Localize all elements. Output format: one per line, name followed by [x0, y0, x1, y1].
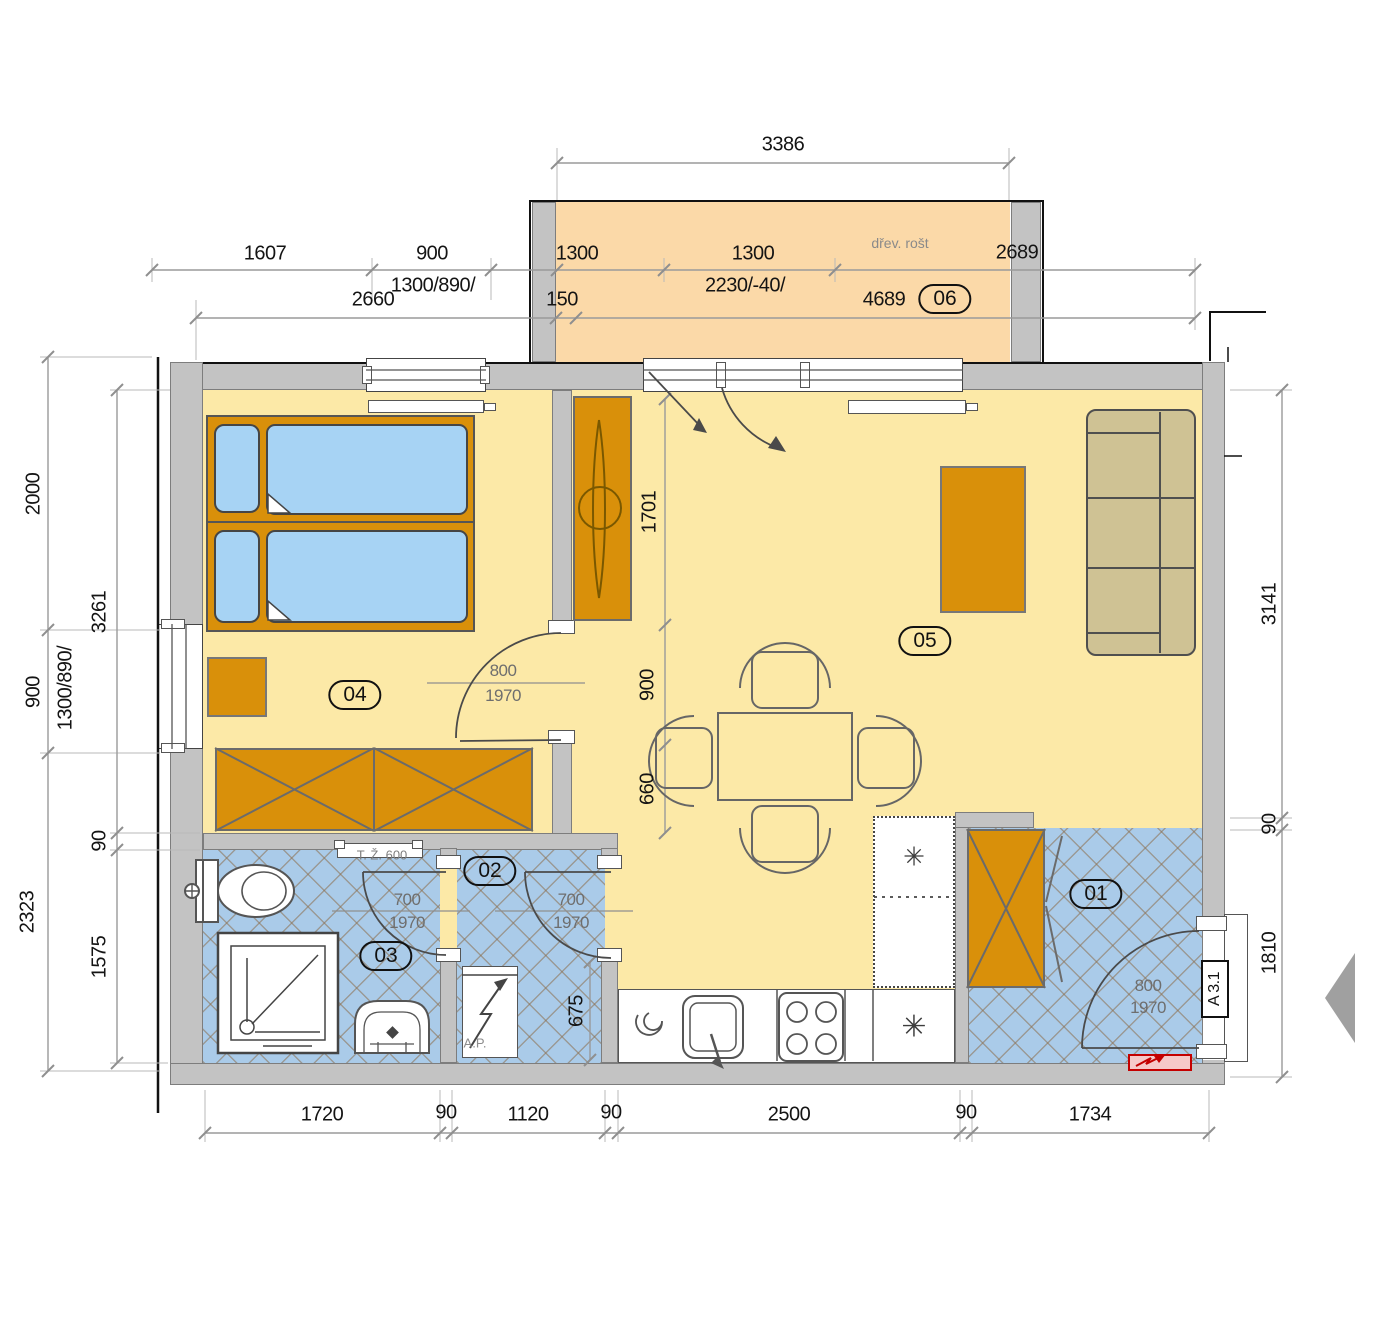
nightstand: [207, 657, 267, 717]
room-badge-01: 01: [1069, 879, 1122, 909]
dim-top-seg5: 4689: [863, 289, 906, 312]
dim-balcony-panel2: 1300: [732, 243, 775, 266]
spec-bath-door-h: 1970: [389, 913, 425, 933]
dim-interior-table-clear: 900: [637, 669, 660, 701]
bed1-pillow: [214, 424, 260, 513]
room-badge-04: 04: [328, 680, 381, 710]
note-washing-machine: A.P.: [464, 1036, 487, 1051]
spec-entrance-door-w: 800: [1135, 976, 1162, 996]
balcony-pillar-left: [532, 202, 556, 362]
electrical-box: [1128, 1054, 1192, 1071]
wall-hall-stub: [955, 812, 1034, 828]
note-towel-rail: T. Ž. 600: [357, 848, 408, 863]
bedroom-door-post-bottom: [548, 730, 575, 744]
dim-right-seg3: 1810: [1259, 932, 1282, 975]
wc-door-post-top: [597, 855, 622, 869]
spec-bedroom-door-w: 800: [490, 661, 517, 681]
dim-left-seg6: 1575: [89, 936, 112, 979]
balcony-window-mullion-1: [716, 362, 726, 388]
left-window-post-bottom: [161, 743, 185, 753]
bedroom-window: [366, 358, 486, 392]
spec-balcony-door: 2230/-40/: [705, 275, 785, 298]
dim-interior-wardrobe-wall: 1701: [639, 491, 662, 534]
wall-bath-wc-lower: [440, 958, 457, 1063]
spec-left-window: 1300/890/: [55, 646, 78, 730]
balcony-window-mullion-2: [800, 362, 810, 388]
fridge-snowflake-icon: ✳: [903, 842, 925, 873]
bed2-pillow: [214, 530, 260, 623]
wall-bottom: [170, 1063, 1225, 1085]
bedroom-door-post-top: [548, 620, 575, 634]
spec-bedroom-window: 1300/890/: [391, 275, 475, 298]
bed2-duvet: [266, 530, 468, 623]
dim-bottom-seg7: 1734: [1069, 1104, 1112, 1127]
spec-bath-door-w: 700: [394, 890, 421, 910]
dim-left-seg3: 2323: [17, 891, 40, 934]
dim-top-seg2: 900: [416, 243, 448, 266]
wall-wc-kitchen-lower: [601, 958, 618, 1063]
dim-interior-wc-depth: 675: [566, 995, 589, 1027]
towel-rail-cap-left: [334, 840, 345, 849]
spec-wc-door-h: 1970: [553, 913, 589, 933]
dim-bottom-seg4: 90: [600, 1102, 621, 1125]
radiator-bedroom: [368, 400, 484, 413]
room-badge-03: 03: [359, 941, 412, 971]
dim-balcony-pillar: 150: [546, 289, 578, 312]
dim-interior-table-width: 660: [637, 773, 660, 805]
room-badge-06: 06: [918, 284, 971, 314]
radiator-bedroom-cap: [484, 403, 496, 411]
bedroom-window-post-right: [480, 366, 490, 384]
entrance-post-bottom: [1196, 1044, 1227, 1059]
dim-left-seg5: 90: [89, 830, 112, 851]
dim-balcony-total: 3386: [762, 134, 805, 157]
floor-plan: 3386 1607 900 1300/890/ 2660 1300 1300 d…: [0, 0, 1380, 1320]
sofa: [1086, 409, 1196, 656]
dim-top-seg3: 2660: [352, 289, 395, 312]
section-mark-label: A 3.1: [1206, 972, 1224, 1006]
dim-bottom-seg6: 90: [955, 1102, 976, 1125]
radiator-living-cap: [966, 403, 978, 411]
dim-bottom-seg3: 1120: [507, 1104, 548, 1127]
dim-left-seg2: 900: [23, 676, 46, 708]
note-balcony-floor: dřev. rošt: [871, 235, 928, 251]
entrance-post-top: [1196, 916, 1227, 931]
hallway-cabinet: [573, 396, 632, 621]
wc-door-post-bottom: [597, 948, 622, 962]
dim-right-seg2: 90: [1259, 813, 1282, 834]
section-arrow: [1325, 953, 1355, 1043]
bedroom-window-post-left: [362, 366, 372, 384]
room-badge-02: 02: [463, 856, 516, 886]
radiator-living: [848, 400, 966, 414]
dim-left-seg4: 3261: [89, 591, 112, 634]
spec-wc-door-w: 700: [558, 890, 585, 910]
freezer-snowflake-icon: ✳: [901, 1010, 926, 1045]
room-badge-05: 05: [898, 626, 951, 656]
dim-bottom-seg2: 90: [435, 1102, 456, 1125]
left-window-post-top: [161, 619, 185, 629]
dim-balcony-panel1: 1300: [556, 243, 599, 266]
dim-right-seg1: 3141: [1259, 583, 1282, 626]
dim-top-seg4: 2689: [996, 242, 1039, 265]
towel-rail-cap-right: [412, 840, 423, 849]
hall-wardrobe: [967, 829, 1045, 988]
dim-left-seg1: 2000: [23, 473, 46, 516]
wall-bedroom-living-upper: [552, 390, 572, 623]
dim-bottom-seg5: 2500: [768, 1104, 811, 1127]
dim-top-seg1: 1607: [244, 243, 287, 266]
bath-door-post-top: [436, 855, 461, 869]
left-window: [157, 624, 203, 749]
spec-bedroom-door-h: 1970: [485, 686, 521, 706]
balcony-pillar-right: [1011, 202, 1041, 362]
dim-bottom-seg1: 1720: [301, 1104, 344, 1127]
bed1-duvet: [266, 424, 468, 515]
coffee-table: [940, 466, 1026, 613]
bed-divider: [206, 521, 475, 523]
bath-door-post-bottom: [436, 948, 461, 962]
bedroom-wardrobe: [215, 748, 533, 831]
spec-entrance-door-h: 1970: [1130, 998, 1166, 1018]
